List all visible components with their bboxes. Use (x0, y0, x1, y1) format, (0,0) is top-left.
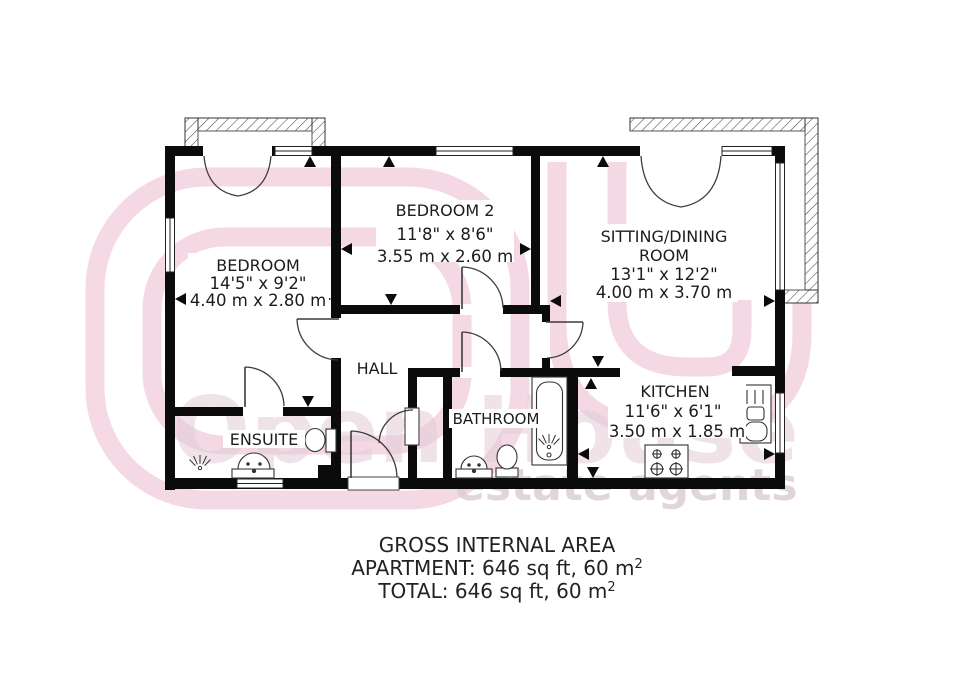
area-summary: GROSS INTERNAL AREA APARTMENT: 646 sq ft… (351, 533, 643, 603)
dim-arrow-right (520, 243, 531, 255)
room-label-sitting-dining-line2: ROOM (639, 246, 689, 265)
balcony-top-left (185, 118, 325, 148)
window-sitting-top (722, 147, 772, 156)
window-bedroom-left (166, 218, 175, 272)
dim-arrow-right (764, 295, 775, 307)
dim-arrow-left (175, 293, 186, 305)
ensuite-toilet (305, 429, 336, 453)
window-bedroom2-top (436, 147, 513, 156)
wall-bathroom-top-left (408, 368, 460, 377)
room-dim-metric: 3.55 m x 2.60 m (377, 247, 513, 266)
room-label-bathroom: BATHROOM (453, 410, 540, 428)
dim-arrow-up (304, 156, 316, 167)
room-label-hall: HALL (357, 359, 398, 378)
window-sitting-right (776, 163, 785, 290)
wall-kitchen-top-left (578, 368, 620, 377)
bathroom-toilet (496, 445, 518, 477)
floorplan-canvas: Open House estate agents (0, 0, 980, 692)
dim-arrow-down (592, 356, 604, 367)
window-ensuite-bottom (237, 479, 283, 488)
wall-bedroom2-bottom (331, 305, 550, 314)
dim-arrow-down (385, 294, 397, 305)
wall-ensuite-step (318, 465, 341, 481)
room-label-ensuite: ENSUITE (230, 430, 299, 449)
total-area-line: TOTAL: 646 sq ft, 60 m2 (377, 579, 615, 603)
dim-arrow-up (383, 156, 395, 167)
front-door-opening (348, 477, 399, 490)
kitchen-hob (645, 445, 688, 478)
room-dim-metric: 3.50 m x 1.85 m (609, 422, 745, 441)
room-label-bedroom: BEDROOM (216, 256, 300, 275)
wall-bathroom-top-right (500, 368, 567, 377)
room-dim-imperial: 13'1" x 12'2" (610, 265, 718, 284)
room-dim-imperial: 11'8" x 8'6" (397, 225, 494, 244)
apartment-area-line: APARTMENT: 646 sq ft, 60 m2 (351, 556, 643, 580)
gross-internal-area-title: GROSS INTERNAL AREA (379, 533, 616, 557)
room-label-bedroom2: BEDROOM 2 (396, 201, 495, 220)
wall-kitchen-top-right (732, 366, 776, 376)
window-bedroom-top (275, 147, 312, 156)
window-kitchen-right (776, 393, 785, 453)
room-label-sitting-dining: SITTING/DINING (601, 227, 728, 246)
room-dim-metric: 4.00 m x 3.70 m (596, 283, 732, 302)
room-dim-imperial: 11'6" x 6'1" (625, 402, 722, 421)
door-french-sitting (641, 156, 721, 207)
wall-left (165, 146, 175, 490)
room-label-kitchen: KITCHEN (640, 382, 709, 401)
room-dim-metric: 4.40 m x 2.80 m (190, 291, 326, 310)
floorplan-page: Open House estate agents (0, 0, 980, 692)
wall-bathroom-kitchen (567, 368, 578, 479)
dim-arrow-up (597, 156, 609, 167)
wall-bedroom2-sitting (531, 146, 540, 314)
